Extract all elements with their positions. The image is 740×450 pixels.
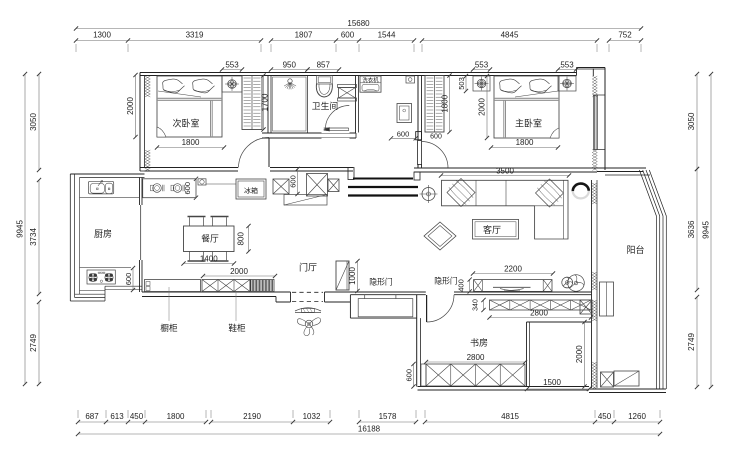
svg-text:3500: 3500 — [496, 167, 514, 176]
svg-text:2800: 2800 — [530, 309, 548, 318]
svg-text:2000: 2000 — [478, 98, 487, 116]
svg-text:冰箱: 冰箱 — [244, 186, 258, 195]
svg-text:600: 600 — [430, 134, 442, 141]
svg-text:1800: 1800 — [516, 138, 534, 147]
svg-text:1800: 1800 — [167, 412, 185, 421]
svg-text:2190: 2190 — [243, 412, 261, 421]
svg-text:340: 340 — [473, 299, 480, 311]
svg-text:3319: 3319 — [186, 31, 204, 40]
svg-text:600: 600 — [341, 31, 355, 40]
svg-text:600: 600 — [183, 182, 192, 195]
svg-text:1800: 1800 — [182, 138, 200, 147]
svg-text:503: 503 — [457, 77, 466, 90]
svg-text:553: 553 — [225, 61, 239, 70]
svg-text:1260: 1260 — [628, 412, 646, 421]
svg-text:3050: 3050 — [29, 113, 38, 131]
svg-text:752: 752 — [618, 31, 632, 40]
svg-text:餐厅: 餐厅 — [201, 233, 219, 244]
svg-text:1807: 1807 — [295, 31, 313, 40]
svg-text:3636: 3636 — [687, 220, 696, 238]
svg-text:600: 600 — [124, 273, 133, 286]
svg-text:613: 613 — [110, 412, 124, 421]
svg-text:次卧室: 次卧室 — [172, 118, 199, 129]
svg-text:隐形门: 隐形门 — [369, 277, 393, 287]
svg-text:400: 400 — [457, 279, 466, 292]
svg-text:4815: 4815 — [501, 412, 519, 421]
svg-text:2800: 2800 — [467, 353, 485, 362]
svg-text:2200: 2200 — [504, 265, 522, 274]
svg-text:隐形门: 隐形门 — [434, 276, 458, 286]
svg-text:3050: 3050 — [687, 112, 696, 130]
svg-text:600: 600 — [289, 175, 298, 188]
svg-text:1400: 1400 — [200, 255, 218, 264]
svg-text:3734: 3734 — [29, 228, 38, 246]
svg-text:2749: 2749 — [687, 333, 696, 351]
svg-text:门厅: 门厅 — [299, 262, 317, 273]
svg-text:687: 687 — [85, 412, 99, 421]
svg-text:1300: 1300 — [93, 31, 111, 40]
svg-text:553: 553 — [560, 61, 574, 70]
svg-text:主卧室: 主卧室 — [515, 118, 542, 129]
svg-text:2000: 2000 — [126, 97, 135, 115]
svg-text:950: 950 — [283, 61, 297, 70]
svg-text:9945: 9945 — [16, 220, 25, 238]
svg-text:2749: 2749 — [29, 334, 38, 352]
svg-text:600: 600 — [405, 369, 414, 382]
svg-text:1800: 1800 — [441, 94, 450, 112]
svg-text:450: 450 — [598, 412, 612, 421]
svg-text:洗衣机: 洗衣机 — [362, 76, 379, 84]
svg-text:1000: 1000 — [348, 267, 357, 285]
svg-text:16188: 16188 — [358, 425, 381, 434]
svg-text:450: 450 — [130, 412, 144, 421]
svg-text:卫生间: 卫生间 — [312, 100, 339, 111]
svg-text:厨房: 厨房 — [94, 228, 112, 239]
svg-text:857: 857 — [317, 61, 331, 70]
svg-text:1578: 1578 — [379, 412, 397, 421]
svg-text:4845: 4845 — [501, 31, 519, 40]
svg-text:800: 800 — [237, 232, 246, 246]
svg-text:阳台: 阳台 — [626, 244, 644, 255]
svg-text:553: 553 — [475, 61, 489, 70]
svg-text:1032: 1032 — [303, 412, 321, 421]
svg-text:9945: 9945 — [702, 221, 711, 239]
svg-text:1700: 1700 — [261, 93, 270, 111]
svg-text:客厅: 客厅 — [483, 224, 501, 235]
svg-text:600: 600 — [397, 130, 410, 139]
svg-text:橱柜: 橱柜 — [160, 322, 178, 333]
svg-text:1500: 1500 — [543, 378, 561, 387]
svg-text:书房: 书房 — [470, 337, 488, 348]
svg-text:2000: 2000 — [230, 267, 248, 276]
svg-text:15680: 15680 — [347, 19, 370, 28]
svg-text:2000: 2000 — [575, 345, 584, 363]
svg-text:1544: 1544 — [378, 31, 396, 40]
svg-text:鞋柜: 鞋柜 — [228, 322, 246, 333]
